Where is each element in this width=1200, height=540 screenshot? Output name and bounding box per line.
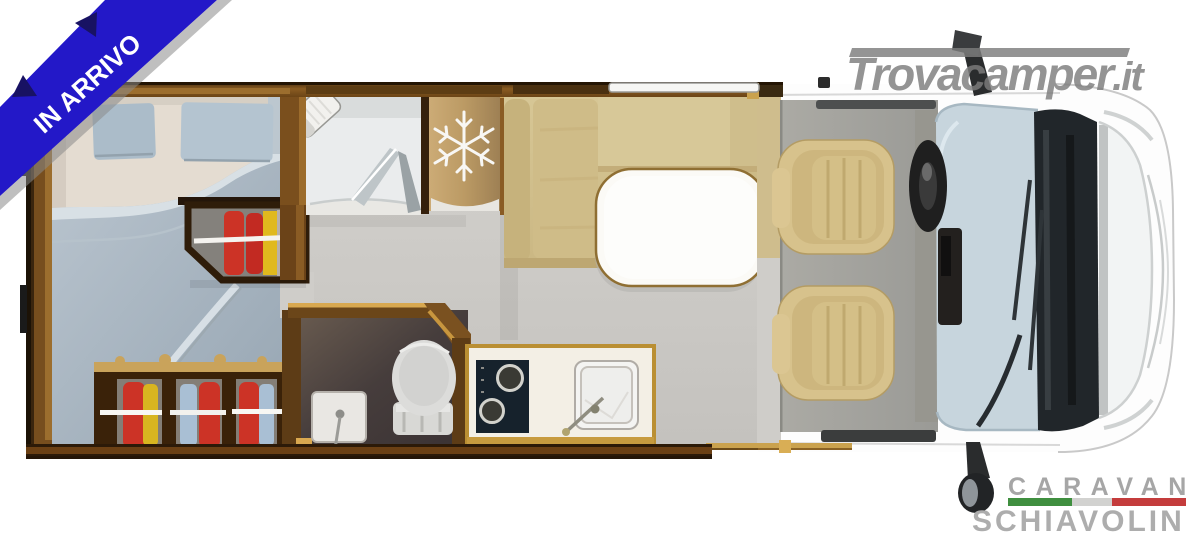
svg-text:SCHIAVOLIN: SCHIAVOLIN bbox=[972, 505, 1185, 538]
svg-text:Trovacamper.it: Trovacamper.it bbox=[846, 48, 1145, 100]
svg-text:CARAVAN: CARAVAN bbox=[1008, 473, 1196, 501]
